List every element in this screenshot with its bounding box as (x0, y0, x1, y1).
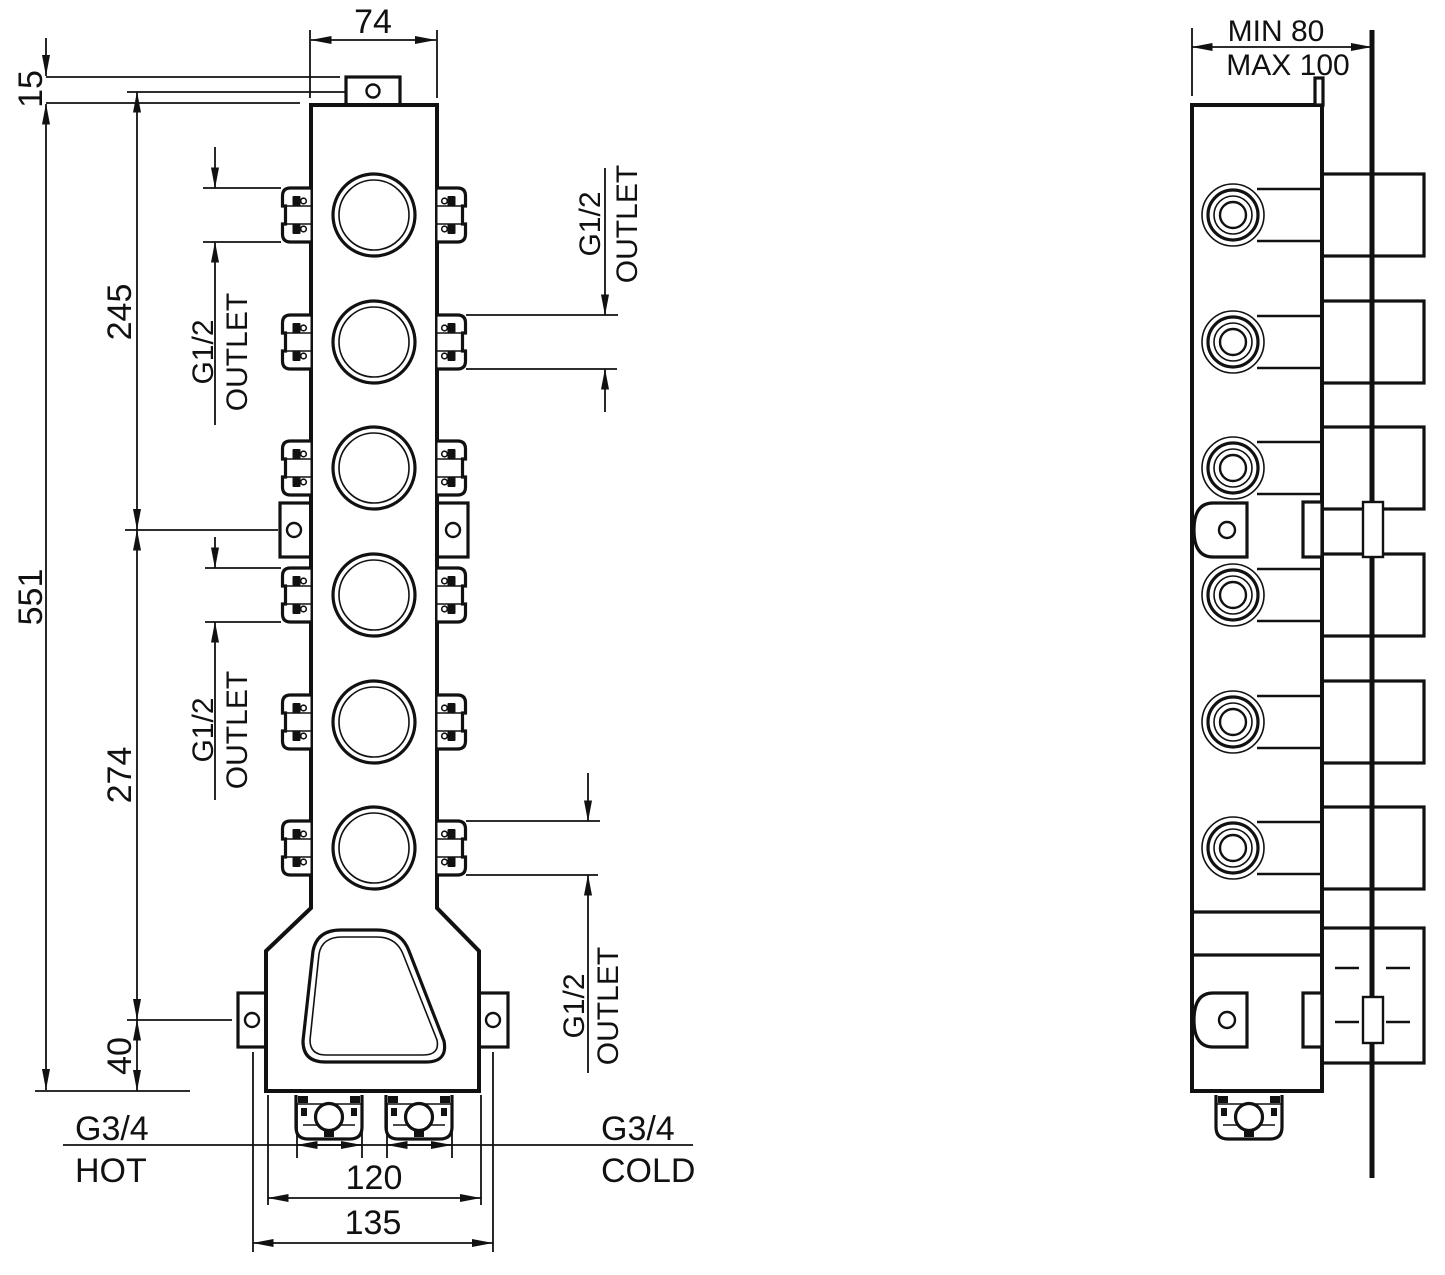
dimensions: 74 15 551 245 274 40 (12, 3, 1372, 1252)
dim-label-max100: MAX 100 (1226, 49, 1349, 82)
mid-tab-hole-right (446, 523, 460, 537)
outlet-size-label: G1/2 (187, 697, 220, 762)
outlet-word-label: OUTLET (611, 165, 644, 283)
dim-wall-depth: MIN 80 MAX 100 (1192, 15, 1372, 96)
top-mounting-tab (346, 77, 400, 105)
wall-clip-mid (1363, 502, 1383, 557)
dim-label-74: 74 (354, 3, 392, 41)
top-tab-side (1315, 78, 1323, 105)
wall-clip-bottom (1363, 997, 1383, 1043)
mid-tab-hole-left (287, 523, 301, 537)
inlet-fitting-cold (386, 1095, 452, 1139)
dim-label-15: 15 (12, 70, 50, 108)
side-mounting-tab-bottom (1194, 993, 1247, 1047)
dim-height-551: 551 (12, 104, 190, 1091)
side-mounting-tab-mid (1194, 503, 1247, 557)
inlet-cold-word: COLD (601, 1152, 695, 1190)
dim-outlet-upper-right: G1/2 OUTLET (466, 165, 644, 412)
side-tab-boss-mid (1303, 502, 1322, 557)
dim-label-135: 135 (345, 1204, 402, 1242)
valve-technical-drawing: 74 15 551 245 274 40 (0, 0, 1445, 1275)
outlet-size-label: G1/2 (558, 973, 591, 1038)
dim-outlet-upper-left: G1/2 OUTLET (187, 147, 281, 425)
inlet-hot-word: HOT (75, 1152, 147, 1190)
inlet-hot-size: G3/4 (75, 1110, 149, 1148)
bottom-tab-hole-right (486, 1013, 500, 1027)
side-tab-boss-bottom (1303, 993, 1322, 1047)
dim-label-40: 40 (101, 1037, 139, 1075)
outlet-size-label: G1/2 (187, 319, 220, 384)
outlet-size-label: G1/2 (574, 191, 607, 256)
dim-bottom-40: 40 (101, 1020, 139, 1091)
dim-offset-15: 15 (12, 38, 340, 108)
dim-label-551: 551 (12, 569, 50, 626)
inlet-fitting-side (1216, 1095, 1282, 1139)
outlet-word-label: OUTLET (592, 947, 625, 1065)
dim-outlet-mid-left: G1/2 OUTLET (187, 537, 281, 800)
dim-label-245: 245 (101, 284, 139, 341)
technical-drawing-page: 74 15 551 245 274 40 (0, 0, 1445, 1275)
inlet-fitting-hot (296, 1095, 362, 1139)
side-view (1192, 30, 1424, 1178)
dim-label-120: 120 (346, 1159, 403, 1197)
dim-span-274: 274 (101, 530, 232, 1020)
outlet-word-label: OUTLET (221, 671, 254, 789)
bottom-tab-hole-left (245, 1013, 259, 1027)
inlet-cold-size: G3/4 (601, 1110, 675, 1148)
outlet-word-label: OUTLET (221, 293, 254, 411)
front-view (238, 77, 508, 1139)
top-tab-hole (367, 85, 380, 98)
dim-label-min80: MIN 80 (1228, 15, 1325, 48)
dim-label-274: 274 (101, 747, 139, 804)
